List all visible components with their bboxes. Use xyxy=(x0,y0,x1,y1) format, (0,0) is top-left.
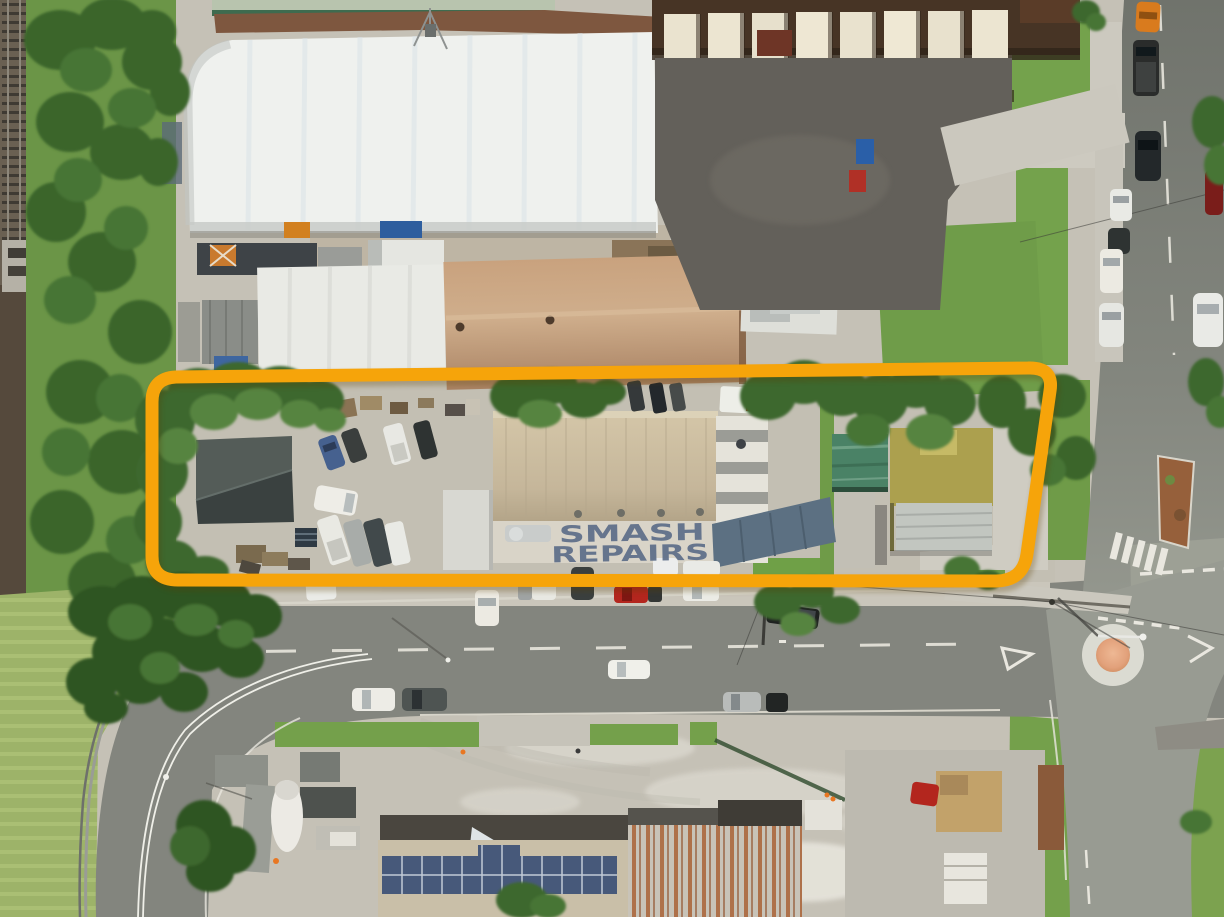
red-car-yard xyxy=(910,781,940,807)
rust-roof-building xyxy=(628,800,802,917)
white-canopy xyxy=(805,800,842,830)
roof-sign: SMASH REPAIRS xyxy=(551,520,710,569)
white-factory-building xyxy=(257,264,446,381)
skylight-panel xyxy=(295,528,317,547)
roof-sign-line-2: REPAIRS xyxy=(551,541,709,569)
aerial-photo: SMASH REPAIRS xyxy=(0,0,1224,917)
blue-container xyxy=(380,221,422,238)
white-warehouse xyxy=(162,8,658,238)
driving-car xyxy=(608,660,650,679)
red-container xyxy=(757,30,792,56)
red-bin xyxy=(849,170,866,192)
lot-shed xyxy=(196,436,294,524)
median-island xyxy=(1158,456,1194,548)
mixer-truck-cab xyxy=(330,832,356,846)
street-light-pole xyxy=(1098,636,1140,637)
orange-container xyxy=(284,222,310,238)
worker-hi-vis xyxy=(273,858,279,864)
mulch-bed xyxy=(1038,765,1064,850)
blue-bin xyxy=(856,139,874,164)
aggregate-hopper xyxy=(300,787,356,818)
street-light-head xyxy=(1140,634,1147,641)
